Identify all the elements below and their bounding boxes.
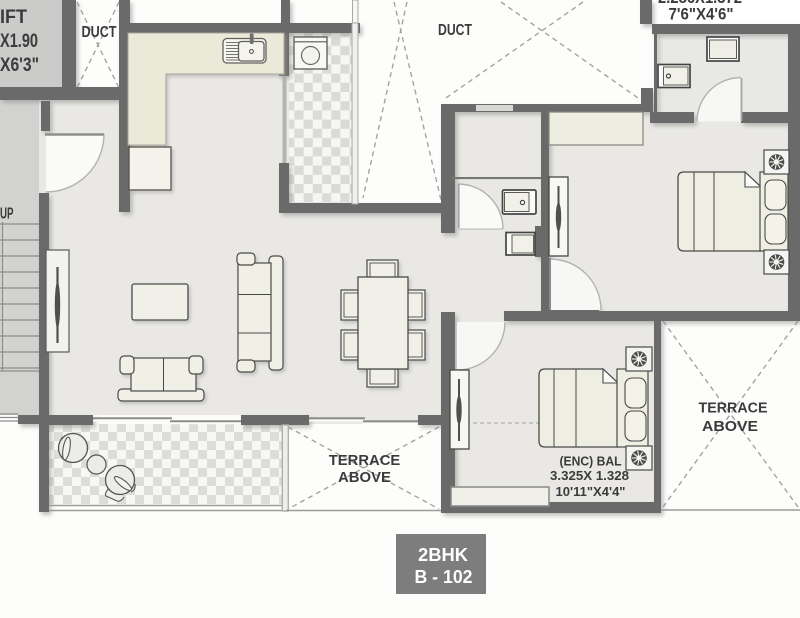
svg-text:X1.90: X1.90: [0, 31, 38, 52]
svg-text:TERRACE: TERRACE: [699, 401, 768, 417]
svg-text:TERRACE: TERRACE: [329, 452, 401, 469]
svg-text:2BHK: 2BHK: [418, 545, 468, 565]
svg-text:10'11"X4'4": 10'11"X4'4": [556, 485, 626, 499]
svg-text:DUCT: DUCT: [438, 22, 472, 39]
svg-text:ABOVE: ABOVE: [338, 470, 391, 486]
svg-text:UP: UP: [0, 206, 14, 223]
svg-text:ABOVE: ABOVE: [702, 419, 758, 435]
svg-text:DUCT: DUCT: [82, 24, 117, 41]
svg-text:7'6"X4'6": 7'6"X4'6": [669, 5, 734, 24]
svg-text:(ENC) BAL: (ENC) BAL: [560, 454, 622, 469]
svg-text:B - 102: B - 102: [415, 567, 473, 587]
svg-text:3.325X 1.328: 3.325X 1.328: [550, 469, 629, 483]
svg-text:X6'3": X6'3": [0, 55, 39, 76]
svg-text:2.286X1.372: 2.286X1.372: [658, 0, 742, 7]
svg-text:IFT: IFT: [0, 7, 27, 28]
